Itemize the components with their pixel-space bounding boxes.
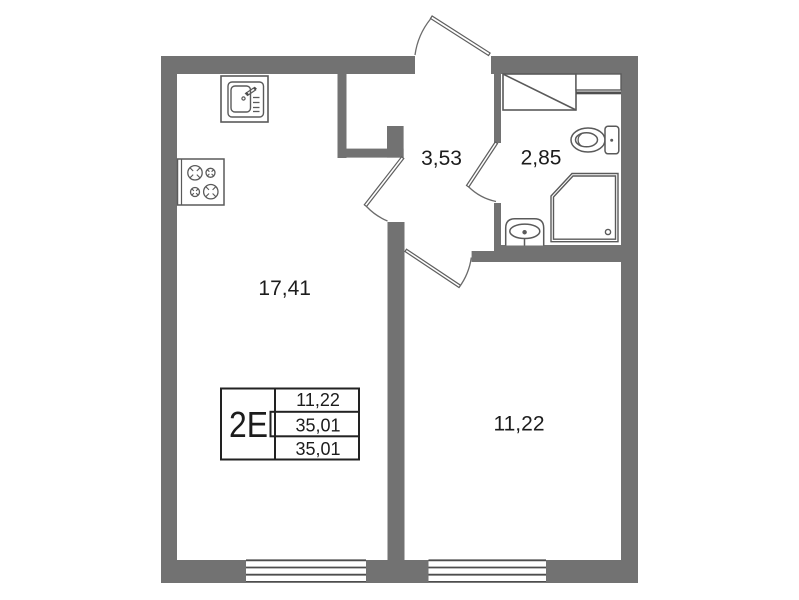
svg-text:17,41: 17,41 — [258, 277, 311, 300]
svg-text:35,01: 35,01 — [295, 416, 340, 436]
svg-text:2,85: 2,85 — [521, 147, 562, 170]
svg-text:3,53: 3,53 — [421, 147, 462, 170]
svg-text:2E: 2E — [229, 404, 268, 445]
svg-text:35,01: 35,01 — [295, 439, 340, 459]
svg-text:11,22: 11,22 — [494, 413, 545, 436]
svg-text:11,22: 11,22 — [296, 390, 340, 410]
